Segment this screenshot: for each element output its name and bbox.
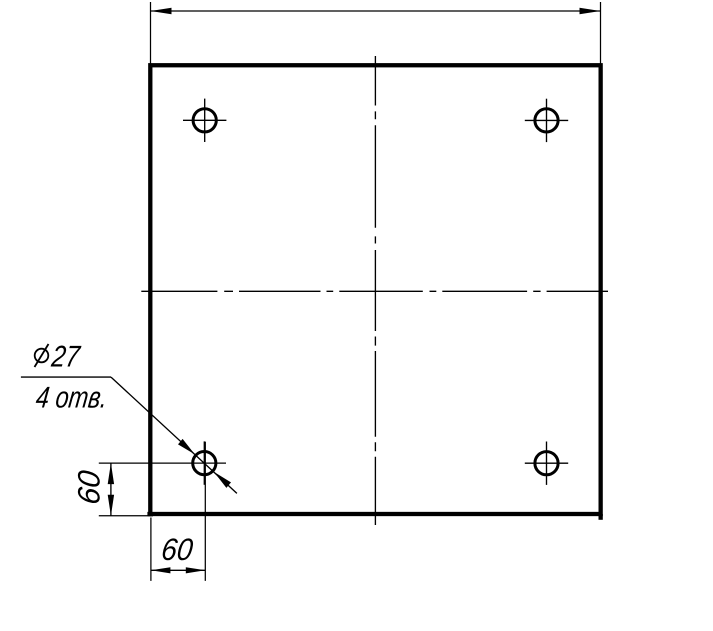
svg-text:60: 60 [160,532,196,567]
svg-text:27: 27 [49,340,82,373]
svg-text:60: 60 [72,468,107,506]
svg-text:4 отв.: 4 отв. [34,382,109,415]
